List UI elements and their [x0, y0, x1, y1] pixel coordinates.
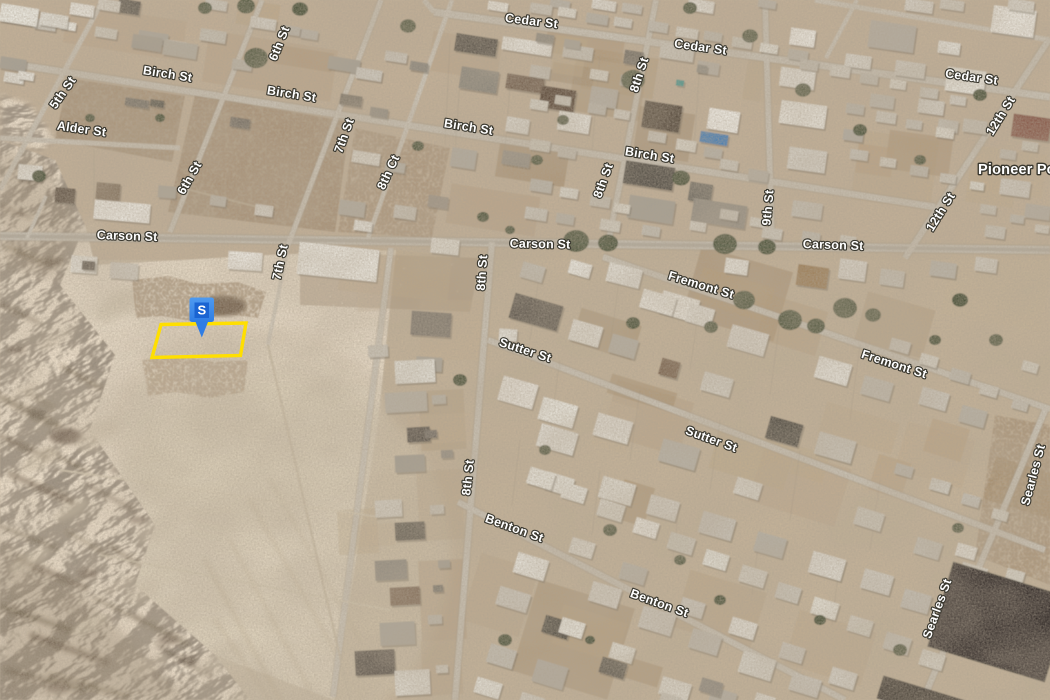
- svg-text:Pioneer Point: Pioneer Point: [978, 162, 1050, 178]
- svg-text:Carson St: Carson St: [802, 237, 864, 253]
- svg-text:S: S: [197, 303, 206, 318]
- svg-text:Carson St: Carson St: [510, 236, 572, 251]
- svg-text:8th St: 8th St: [474, 254, 491, 291]
- svg-text:Carson St: Carson St: [96, 228, 158, 244]
